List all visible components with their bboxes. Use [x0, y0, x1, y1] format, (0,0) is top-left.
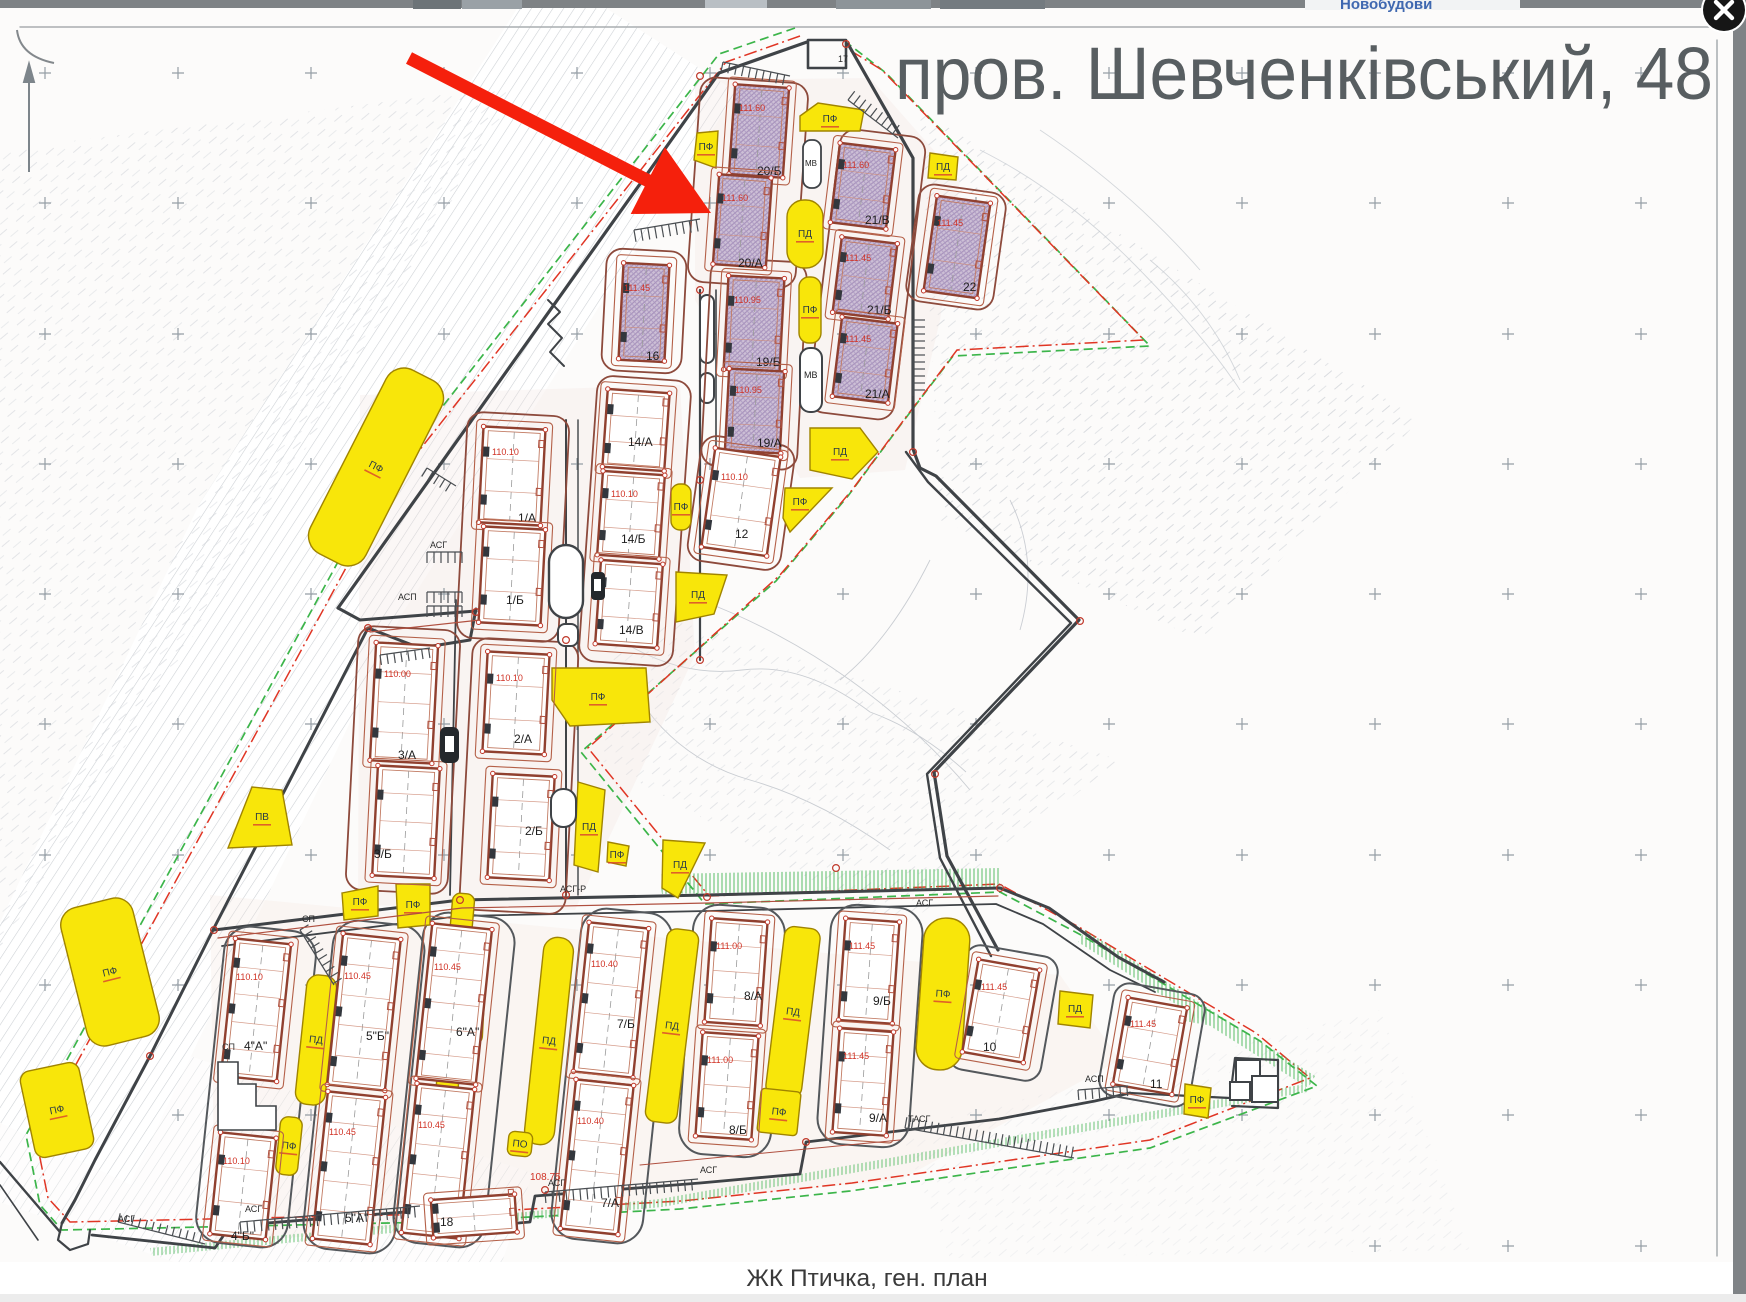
svg-text:ПФ: ПФ: [406, 900, 421, 911]
svg-text:110.10: 110.10: [611, 489, 638, 499]
svg-text:МВ: МВ: [805, 159, 817, 168]
svg-text:ПФ: ПФ: [935, 988, 951, 1000]
svg-text:4"Б": 4"Б": [231, 1229, 254, 1243]
svg-text:111.45: 111.45: [845, 334, 871, 344]
svg-text:14/В: 14/В: [619, 623, 644, 637]
svg-text:21/А: 21/А: [865, 387, 890, 401]
svg-text:111.45: 111.45: [981, 982, 1007, 992]
svg-text:ПФ: ПФ: [674, 502, 689, 513]
svg-text:111.45: 111.45: [624, 283, 650, 293]
svg-text:110.00: 110.00: [384, 669, 411, 679]
svg-text:СП: СП: [302, 914, 315, 924]
svg-text:ПД: ПД: [582, 822, 596, 833]
svg-text:МВ: МВ: [804, 370, 818, 380]
svg-text:5"А": 5"А": [345, 1211, 368, 1225]
svg-text:АСГ: АСГ: [118, 1214, 135, 1224]
svg-text:14/А: 14/А: [628, 435, 653, 449]
svg-text:АСГ: АСГ: [430, 540, 447, 550]
svg-text:ПД: ПД: [785, 1006, 800, 1019]
svg-text:111.60: 111.60: [843, 160, 869, 170]
svg-text:111.00: 111.00: [716, 941, 742, 951]
svg-text:ПД: ПД: [798, 229, 812, 240]
svg-text:16: 16: [646, 349, 660, 363]
svg-text:ПФ: ПФ: [591, 692, 606, 703]
svg-text:ПФ: ПФ: [699, 142, 714, 153]
svg-text:19/Б: 19/Б: [756, 355, 781, 369]
svg-text:8/А: 8/А: [744, 989, 762, 1003]
svg-text:6"А": 6"А": [456, 1025, 479, 1039]
svg-text:3/Б: 3/Б: [374, 847, 392, 861]
svg-text:АСП: АСП: [1085, 1074, 1104, 1084]
svg-text:21/В: 21/В: [865, 213, 890, 227]
svg-text:ПД: ПД: [691, 590, 705, 601]
svg-text:ПД: ПД: [664, 1020, 679, 1033]
svg-text:110.95: 110.95: [735, 385, 762, 395]
svg-text:АСГ: АСГ: [916, 898, 933, 908]
svg-text:ТАСГ: ТАСГ: [908, 1114, 931, 1124]
svg-text:ПФ: ПФ: [610, 850, 625, 861]
svg-text:12: 12: [735, 527, 749, 541]
svg-text:Новобудови: Новобудови: [1340, 0, 1432, 13]
svg-text:1/А: 1/А: [518, 511, 536, 525]
svg-text:9/Б: 9/Б: [873, 994, 891, 1008]
svg-text:ПД: ПД: [1068, 1004, 1082, 1015]
svg-text:18: 18: [440, 1215, 454, 1229]
svg-text:АСГ: АСГ: [548, 1178, 565, 1188]
svg-text:ПФ: ПФ: [823, 114, 838, 125]
svg-text:7/Б: 7/Б: [617, 1017, 635, 1031]
svg-text:22: 22: [963, 280, 977, 294]
svg-text:ПД: ПД: [673, 860, 687, 871]
svg-text:5"Б": 5"Б": [366, 1029, 389, 1043]
svg-text:1/Б: 1/Б: [506, 593, 524, 607]
svg-text:ПФ: ПФ: [803, 305, 818, 316]
svg-text:14/Б: 14/Б: [621, 532, 646, 546]
svg-text:ПД: ПД: [308, 1034, 323, 1046]
svg-text:ПФ: ПФ: [793, 497, 808, 508]
svg-text:111.45: 111.45: [849, 941, 875, 951]
svg-text:8/Б: 8/Б: [729, 1123, 747, 1137]
svg-text:110.10: 110.10: [721, 472, 748, 482]
svg-text:17: 17: [838, 54, 848, 64]
svg-text:ПД: ПД: [936, 162, 950, 173]
svg-text:ПД: ПД: [833, 447, 847, 458]
svg-text:110.40: 110.40: [577, 1116, 604, 1126]
svg-text:110.95: 110.95: [734, 295, 761, 305]
svg-text:110.10: 110.10: [236, 972, 263, 982]
svg-text:111.60: 111.60: [722, 193, 748, 203]
svg-text:ПФ: ПФ: [281, 1140, 297, 1153]
svg-text:111.00: 111.00: [707, 1055, 733, 1065]
svg-text:4"А": 4"А": [244, 1039, 267, 1053]
svg-text:110.10: 110.10: [496, 673, 523, 683]
svg-text:ПО: ПО: [512, 1138, 528, 1151]
svg-text:110.40: 110.40: [591, 959, 618, 969]
svg-text:ПД: ПД: [541, 1035, 556, 1047]
svg-text:110.10: 110.10: [223, 1156, 250, 1166]
svg-text:СП: СП: [222, 1042, 235, 1052]
svg-text:10: 10: [983, 1040, 997, 1054]
svg-text:2/А: 2/А: [514, 732, 532, 746]
svg-text:АСП: АСП: [398, 592, 417, 602]
svg-text:110.45: 110.45: [344, 971, 371, 981]
svg-text:АСГ: АСГ: [245, 1204, 262, 1214]
svg-text:ПФ: ПФ: [353, 897, 368, 908]
svg-text:7/А: 7/А: [601, 1196, 619, 1210]
svg-text:110.45: 110.45: [434, 962, 461, 972]
svg-text:110.10: 110.10: [492, 447, 519, 457]
svg-text:111.45: 111.45: [845, 253, 871, 263]
svg-text:АСГ-Р: АСГ-Р: [560, 884, 586, 894]
svg-text:9/А: 9/А: [869, 1111, 887, 1125]
svg-text:2/Б: 2/Б: [525, 824, 543, 838]
svg-text:ЖК Птичка, ген. план: ЖК Птичка, ген. план: [746, 1265, 987, 1292]
svg-text:111.45: 111.45: [843, 1051, 869, 1061]
svg-text:111.60: 111.60: [739, 103, 765, 113]
svg-text:20/А: 20/А: [738, 256, 763, 270]
svg-text:АСГ: АСГ: [700, 1165, 717, 1175]
svg-text:ПФ: ПФ: [1190, 1095, 1205, 1106]
svg-text:111.45: 111.45: [937, 218, 963, 228]
svg-text:ПВ: ПВ: [255, 812, 269, 823]
svg-text:11: 11: [1150, 1077, 1163, 1091]
svg-text:111.45: 111.45: [1130, 1019, 1156, 1029]
svg-text:110.45: 110.45: [329, 1127, 356, 1137]
svg-text:110.45: 110.45: [418, 1120, 445, 1130]
svg-text:пров. Шевченківський, 48: пров. Шевченківський, 48: [895, 32, 1713, 115]
svg-text:ПФ: ПФ: [771, 1106, 787, 1119]
